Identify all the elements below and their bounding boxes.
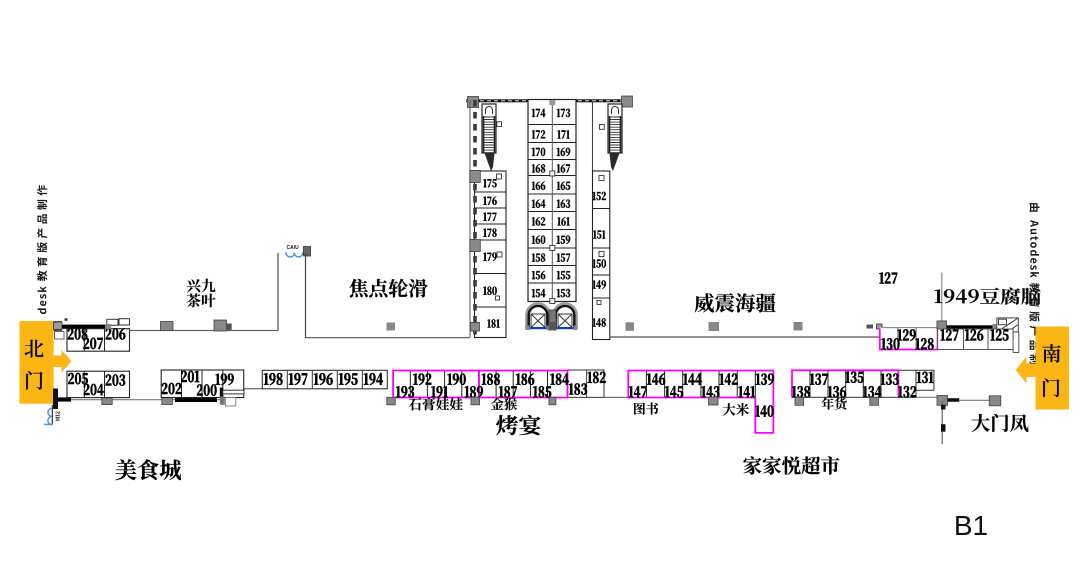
svg-text:M12: M12 — [56, 411, 62, 421]
svg-text:B1: B1 — [954, 510, 988, 541]
svg-text:CAIU: CAIU — [287, 245, 300, 251]
